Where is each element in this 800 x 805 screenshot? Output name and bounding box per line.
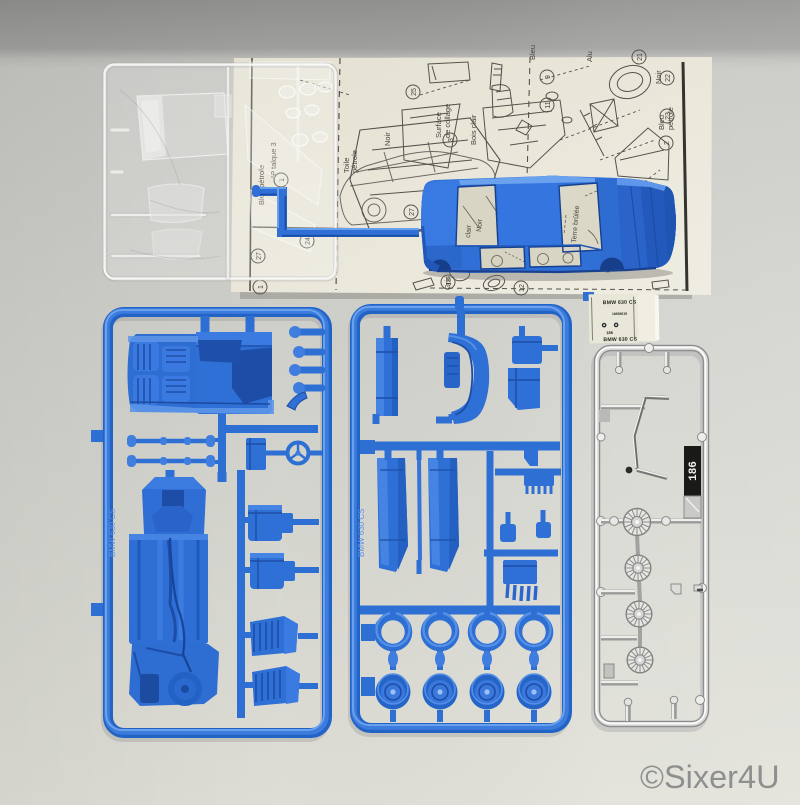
svg-text:pétrole: pétrole bbox=[666, 107, 675, 130]
svg-text:Bleu: Bleu bbox=[528, 45, 537, 60]
svg-text:de collage: de collage bbox=[443, 104, 452, 138]
svg-text:clair: clair bbox=[465, 224, 473, 238]
svg-text:11: 11 bbox=[545, 101, 552, 108]
svg-text:BMW 630 CS: BMW 630 CS bbox=[603, 337, 637, 344]
svg-text:186: 186 bbox=[688, 461, 700, 481]
svg-text:18668618: 18668618 bbox=[612, 312, 627, 316]
svg-text:BMW 630 CS: BMW 630 CS bbox=[108, 509, 117, 557]
svg-text:Gris: Gris bbox=[443, 276, 452, 290]
svg-text:9: 9 bbox=[545, 75, 552, 79]
svg-text:Surface: Surface bbox=[434, 112, 443, 138]
svg-text:©Sixer4U: ©Sixer4U bbox=[640, 759, 780, 795]
svg-text:1: 1 bbox=[258, 285, 265, 289]
svg-text:12: 12 bbox=[519, 284, 526, 292]
svg-text:2: 2 bbox=[664, 141, 671, 145]
svg-text:BMW 630 CS: BMW 630 CS bbox=[357, 509, 366, 557]
svg-text:Noir: Noir bbox=[383, 132, 392, 146]
svg-text:186: 186 bbox=[606, 330, 614, 335]
svg-text:25: 25 bbox=[411, 88, 418, 96]
svg-text:BMW 630 CS: BMW 630 CS bbox=[603, 300, 637, 307]
svg-text:pétrole: pétrole bbox=[350, 150, 359, 173]
svg-text:Bleu: Bleu bbox=[657, 115, 666, 130]
svg-text:27: 27 bbox=[409, 208, 416, 216]
svg-text:22: 22 bbox=[665, 74, 672, 82]
svg-text:21: 21 bbox=[637, 53, 644, 61]
svg-text:Bois clair: Bois clair bbox=[469, 114, 478, 145]
svg-text:Alu: Alu bbox=[585, 51, 594, 62]
svg-text:Noir: Noir bbox=[654, 70, 663, 84]
